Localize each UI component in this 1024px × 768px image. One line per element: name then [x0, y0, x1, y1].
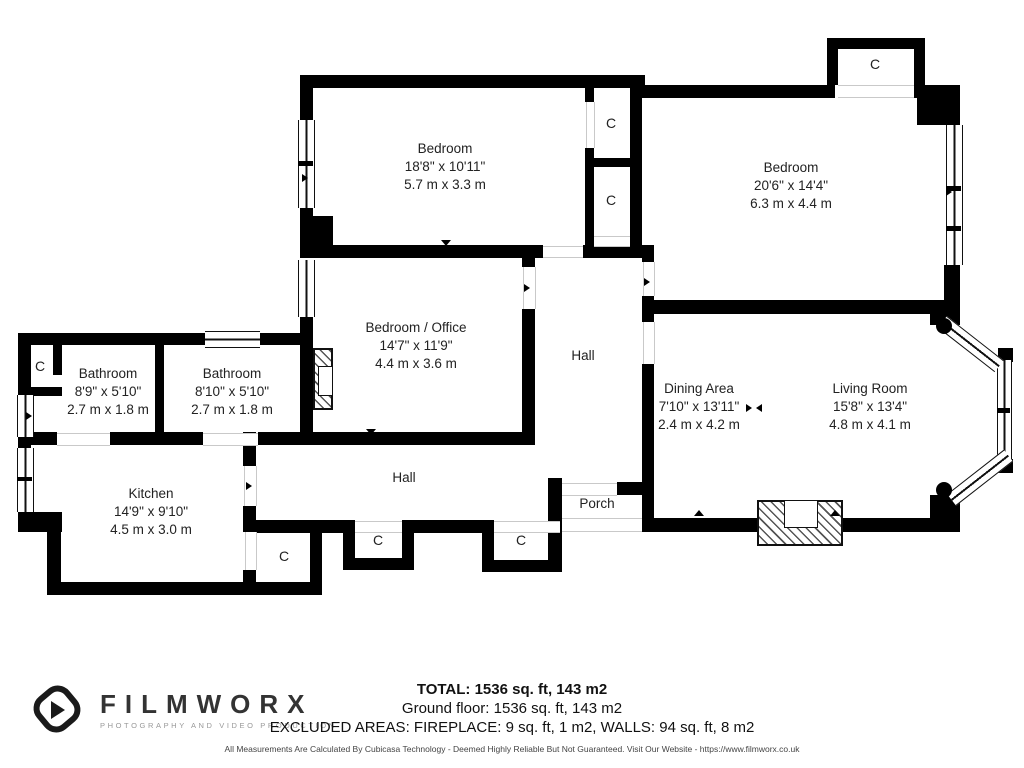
- door-marker-icon: [826, 302, 836, 308]
- door-marker-icon: [366, 429, 376, 435]
- door-marker-icon: [644, 278, 650, 286]
- room-label-bathroom-left: Bathroom 8'9" x 5'10" 2.7 m x 1.8 m: [67, 365, 149, 419]
- door-marker-icon: [694, 510, 704, 516]
- room-dimensions-imperial: 15'8" x 13'4": [829, 398, 911, 416]
- disclaimer: All Measurements Are Calculated By Cubic…: [0, 744, 1024, 754]
- room-dimensions-imperial: 7'10" x 13'11": [658, 398, 740, 416]
- room-name: Kitchen: [110, 485, 192, 503]
- room-label-kitchen: Kitchen 14'9" x 9'10" 4.5 m x 3.0 m: [110, 485, 192, 539]
- wall: [53, 345, 62, 375]
- wall: [827, 38, 925, 49]
- room-dimensions-imperial: 8'10" x 5'10": [191, 383, 273, 401]
- room-dimensions-metric: 4.5 m x 3.0 m: [110, 521, 192, 539]
- wall: [642, 364, 654, 440]
- wall: [642, 296, 654, 322]
- wall: [594, 158, 630, 167]
- window: [298, 260, 315, 317]
- closet-label: C: [35, 357, 45, 375]
- room-label-bedroom-top-left: Bedroom 18'8" x 10'11" 5.7 m x 3.3 m: [404, 140, 486, 194]
- window: [205, 331, 260, 348]
- door-marker-icon: [443, 78, 453, 84]
- closet-label: C: [373, 531, 383, 549]
- door-opening: [562, 483, 617, 496]
- room-name: Bathroom: [191, 365, 273, 383]
- window-mullion: [17, 477, 32, 481]
- door-opening: [355, 521, 402, 533]
- room-dimensions-imperial: 14'9" x 9'10": [110, 503, 192, 521]
- room-name: Dining Area: [658, 380, 740, 398]
- closet-label: C: [606, 114, 616, 132]
- window-mullion: [946, 226, 961, 231]
- wall: [243, 506, 256, 532]
- room-label-porch: Porch: [579, 495, 614, 513]
- area-summary: TOTAL: 1536 sq. ft, 143 m2 Ground floor:…: [0, 680, 1024, 754]
- room-label-bedroom-top-right: Bedroom 20'6" x 14'4" 6.3 m x 4.4 m: [750, 159, 832, 213]
- wall: [914, 38, 925, 85]
- door-marker-icon: [692, 302, 702, 308]
- door-opening: [586, 102, 595, 148]
- room-dimensions-metric: 4.4 m x 3.6 m: [365, 355, 466, 373]
- door-opening: [543, 246, 583, 258]
- wall: [414, 520, 482, 533]
- door-opening: [57, 433, 110, 446]
- window-mullion: [298, 161, 313, 166]
- room-label-hall-upper: Hall: [571, 347, 594, 365]
- column-dot: [936, 482, 952, 498]
- closet-label: C: [516, 531, 526, 549]
- room-label-bathroom-right: Bathroom 8'10" x 5'10" 2.7 m x 1.8 m: [191, 365, 273, 419]
- fireplace-hearth: [784, 500, 818, 528]
- window-mullion: [997, 408, 1010, 413]
- room-dimensions-metric: 6.3 m x 4.4 m: [750, 195, 832, 213]
- wall: [522, 245, 535, 267]
- door-marker-icon: [736, 88, 746, 94]
- room-name: Bedroom / Office: [365, 319, 466, 337]
- bay-window: [947, 450, 1013, 506]
- wall: [343, 558, 414, 570]
- wall: [300, 75, 313, 122]
- wall: [259, 582, 322, 595]
- door-opening: [245, 532, 257, 570]
- room-dimensions-imperial: 8'9" x 5'10": [67, 383, 149, 401]
- wall: [258, 333, 313, 345]
- door-opening: [643, 322, 655, 364]
- wall: [18, 333, 208, 345]
- room-dimensions-metric: 2.7 m x 1.8 m: [191, 401, 273, 419]
- wall: [917, 85, 960, 125]
- door-marker-icon: [746, 404, 752, 412]
- door-marker-icon: [524, 284, 530, 292]
- excluded-areas: EXCLUDED AREAS: FIREPLACE: 9 sq. ft, 1 m…: [0, 718, 1024, 737]
- room-label-hall-lower: Hall: [392, 469, 415, 487]
- closet-label: C: [870, 55, 880, 73]
- room-name: Living Room: [829, 380, 911, 398]
- door-marker-icon: [441, 240, 451, 246]
- wall: [585, 148, 594, 245]
- wall: [642, 245, 654, 262]
- fireplace-hearth: [318, 366, 333, 396]
- wall: [155, 345, 164, 432]
- room-dimensions-metric: 4.8 m x 4.1 m: [829, 416, 911, 434]
- wall: [300, 75, 645, 88]
- door-opening: [838, 85, 914, 98]
- room-name: Bedroom: [404, 140, 486, 158]
- door-marker-icon: [756, 404, 762, 412]
- floorplan-page: { "plan": { "closet_label": "C", "rooms"…: [0, 0, 1024, 768]
- room-dimensions-metric: 2.4 m x 4.2 m: [658, 416, 740, 434]
- wall: [585, 88, 594, 102]
- door-marker-icon: [246, 482, 252, 490]
- room-name: Bedroom: [750, 159, 832, 177]
- room-dimensions-imperial: 18'8" x 10'11": [404, 158, 486, 176]
- room-dimensions-imperial: 14'7" x 11'9": [365, 337, 466, 355]
- room-dimensions-metric: 5.7 m x 3.3 m: [404, 176, 486, 194]
- door-marker-icon: [26, 412, 32, 420]
- wall: [258, 432, 535, 445]
- wall: [843, 518, 960, 532]
- door-marker-icon: [830, 510, 840, 516]
- wall: [110, 432, 203, 445]
- wall: [617, 482, 642, 495]
- door-opening: [562, 518, 642, 532]
- door-marker-icon: [302, 174, 308, 182]
- door-opening: [494, 521, 560, 533]
- door-marker-icon: [146, 585, 156, 591]
- room-dimensions-metric: 2.7 m x 1.8 m: [67, 401, 149, 419]
- floor-plan: Bedroom 18'8" x 10'11" 5.7 m x 3.3 m Bed…: [0, 0, 1024, 660]
- room-label-bedroom-office: Bedroom / Office 14'7" x 11'9" 4.4 m x 3…: [365, 319, 466, 373]
- wall: [243, 570, 256, 595]
- wall: [300, 245, 543, 258]
- closet-label: C: [606, 191, 616, 209]
- wall: [522, 309, 535, 432]
- wall: [630, 88, 642, 245]
- column-dot: [936, 318, 952, 334]
- door-marker-icon: [946, 188, 952, 196]
- ground-floor-area: Ground floor: 1536 sq. ft, 143 m2: [0, 699, 1024, 718]
- door-opening: [594, 236, 630, 247]
- door-opening: [203, 433, 258, 446]
- room-label-dining-area: Dining Area 7'10" x 13'11" 2.4 m x 4.2 m: [658, 380, 740, 434]
- room-dimensions-imperial: 20'6" x 14'4": [750, 177, 832, 195]
- total-area: TOTAL: 1536 sq. ft, 143 m2: [0, 680, 1024, 699]
- wall: [642, 518, 762, 532]
- room-label-living-room: Living Room 15'8" x 13'4" 4.8 m x 4.1 m: [829, 380, 911, 434]
- closet-label: C: [279, 547, 289, 565]
- room-name: Bathroom: [67, 365, 149, 383]
- plan-footer: FILMWORX PHOTOGRAPHY AND VIDEO PRODUCTIO…: [0, 672, 1024, 768]
